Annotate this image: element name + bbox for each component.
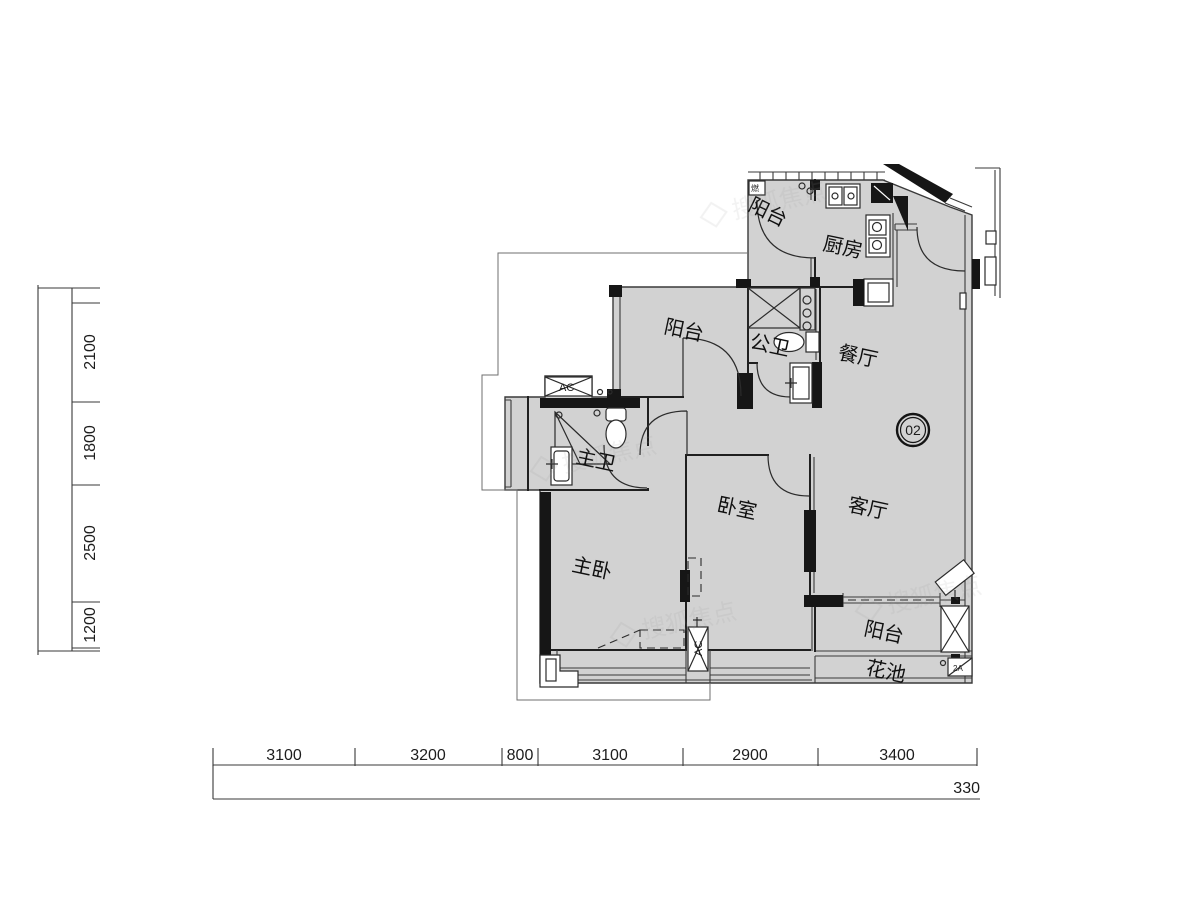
dim-bottom-3200: 3200: [410, 747, 446, 764]
ac-code-label: 2A: [953, 664, 963, 673]
dim-left-2500: 2500: [82, 525, 99, 561]
dim-bottom-total: 330: [953, 780, 980, 797]
dimension-chain-left: 2100 1800 2500 1200: [38, 285, 100, 655]
dimension-chain-bottom: 3100 3200 800 3100 2900 3400 330: [213, 747, 980, 799]
dim-left-1800: 1800: [82, 425, 99, 461]
dim-left-1200: 1200: [82, 607, 99, 643]
dim-left-2100: 2100: [82, 334, 99, 370]
dim-bottom-3100a: 3100: [266, 747, 302, 764]
dim-bottom-2900: 2900: [732, 747, 768, 764]
floor-plan-canvas: 燃 AC: [0, 0, 1200, 900]
kitchen-sink: [826, 184, 860, 208]
dim-bottom-3400: 3400: [879, 747, 915, 764]
dim-bottom-800: 800: [507, 747, 534, 764]
range-hood: [871, 183, 893, 203]
kitchen-door-step: [853, 279, 893, 306]
master-bath-ac-box: AC: [545, 377, 612, 396]
dim-bottom-3100b: 3100: [592, 747, 628, 764]
ac-label: AC: [559, 382, 574, 394]
kitchen-stove: [866, 215, 890, 257]
unit-badge-number: 02: [905, 422, 921, 438]
ac-label-2: AC: [693, 641, 705, 656]
